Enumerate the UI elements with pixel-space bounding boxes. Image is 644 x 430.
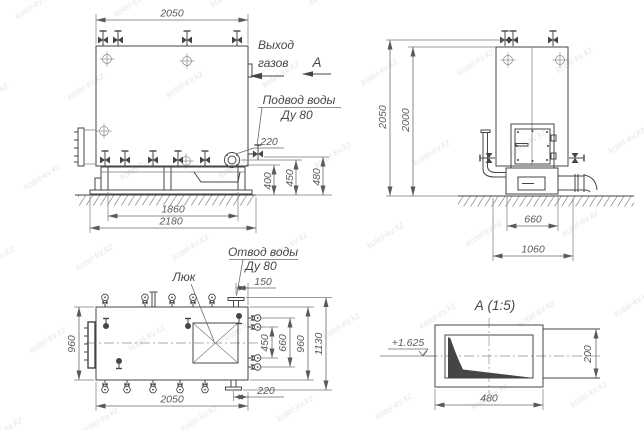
svg-text:660: 660 (524, 214, 542, 226)
svg-text:450: 450 (259, 334, 271, 352)
svg-text:Люк: Люк (172, 270, 197, 284)
svg-text:2050: 2050 (159, 394, 184, 406)
svg-text:660: 660 (277, 334, 289, 352)
svg-text:960: 960 (295, 335, 307, 353)
drawing-canvas: kotel-kv.kz kotel-kv.kz (0, 0, 644, 430)
ground-hatching (458, 197, 634, 207)
svg-text:А: А (311, 55, 321, 70)
svg-text:2050: 2050 (377, 105, 389, 130)
detail-title: А (1:5) (474, 298, 516, 313)
svg-text:Отвод воды: Отвод воды (228, 245, 298, 259)
svg-text:200: 200 (582, 345, 594, 364)
svg-text:220: 220 (259, 136, 278, 148)
svg-text:газов: газов (258, 56, 289, 70)
svg-text:1130: 1130 (313, 333, 325, 356)
svg-text:Ду 80: Ду 80 (243, 259, 277, 273)
svg-text:Ду 80: Ду 80 (279, 108, 313, 122)
svg-text:1060: 1060 (521, 244, 545, 256)
watermark-layer (0, 0, 644, 430)
svg-text:400: 400 (262, 172, 274, 190)
svg-text:2180: 2180 (158, 216, 183, 228)
svg-text:480: 480 (480, 393, 498, 405)
svg-text:220: 220 (256, 385, 275, 397)
svg-text:+1.625: +1.625 (392, 337, 425, 349)
svg-text:480: 480 (311, 168, 323, 186)
svg-text:2050: 2050 (159, 8, 184, 20)
svg-text:Выход: Выход (258, 38, 294, 52)
svg-text:150: 150 (254, 276, 272, 288)
svg-text:2000: 2000 (400, 108, 412, 133)
svg-text:1860: 1860 (161, 204, 185, 216)
svg-text:Подвод воды: Подвод воды (263, 93, 336, 107)
svg-text:450: 450 (284, 169, 296, 187)
svg-text:960: 960 (66, 335, 78, 353)
drawing-page: kotel-kv.kz kotel-kv.kz (0, 0, 644, 430)
